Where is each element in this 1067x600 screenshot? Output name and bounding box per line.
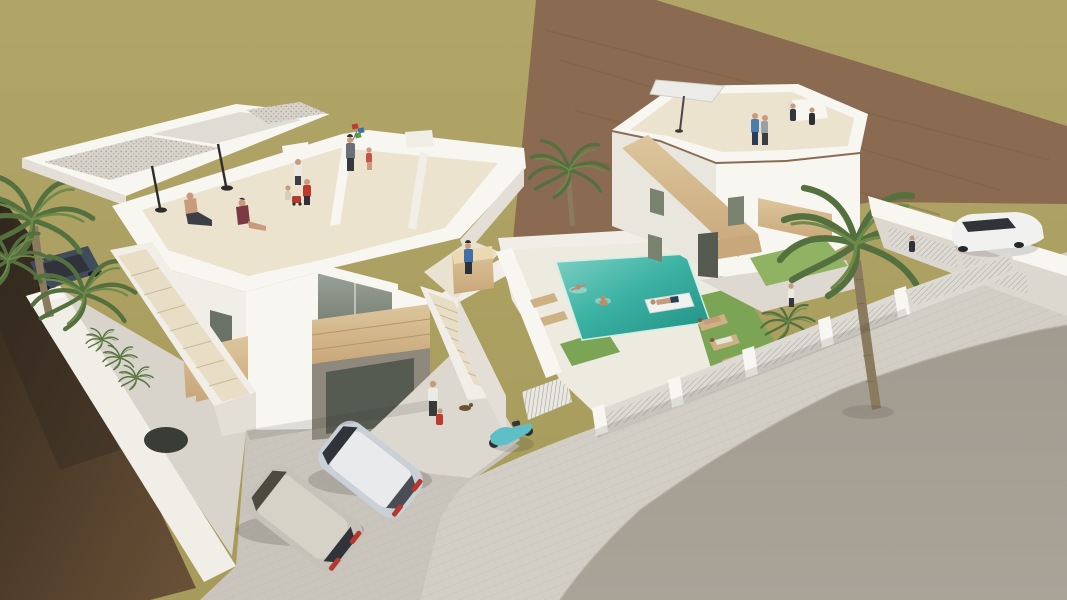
child-red: [303, 179, 311, 205]
toddler: [285, 185, 291, 200]
child-white: [294, 159, 302, 185]
roof-planter: [405, 130, 434, 148]
gravel-patch: [144, 427, 188, 453]
architectural-render: [0, 0, 1067, 600]
person-dark: [790, 103, 796, 121]
white-car: [952, 212, 1044, 257]
person-dark: [809, 107, 815, 125]
door: [698, 232, 718, 278]
person-dark-small: [909, 236, 915, 252]
scene-canvas: [0, 0, 1067, 600]
